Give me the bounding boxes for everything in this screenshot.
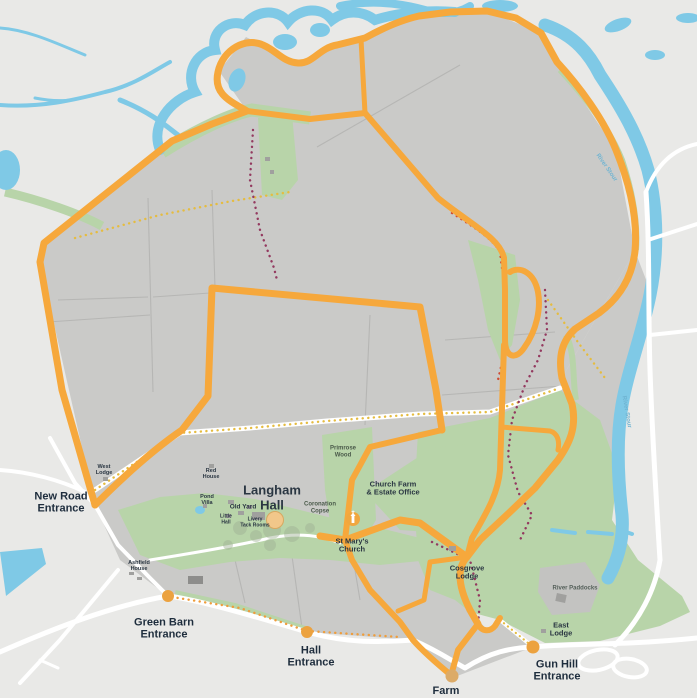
left-edge-water xyxy=(0,150,20,190)
ashfield-house-building-2 xyxy=(137,577,142,580)
east-lodge-building xyxy=(541,629,546,633)
water-pool-3 xyxy=(310,23,330,37)
cosgrove-lodge-building xyxy=(449,546,456,551)
water-pool-6 xyxy=(645,50,665,60)
north-green-patch xyxy=(258,114,298,200)
green-barn-entrance-marker xyxy=(162,590,174,602)
route-hook xyxy=(478,618,500,630)
ashfield-house-building-1 xyxy=(129,572,134,575)
old-yard-building-1 xyxy=(228,500,234,504)
tributary-2 xyxy=(0,62,170,106)
pond-villa-building xyxy=(203,504,207,508)
tributary-3 xyxy=(35,97,85,101)
west-lodge-building xyxy=(103,477,108,481)
estate-map: New RoadEntranceGreen BarnEntranceHallEn… xyxy=(0,0,697,698)
old-yard-building-3 xyxy=(226,514,231,518)
water-pool-2 xyxy=(273,34,297,50)
roundabout-2 xyxy=(612,656,649,680)
water-pool-5 xyxy=(603,15,633,36)
langham-hall-marker xyxy=(267,512,284,529)
east-road-branch-2 xyxy=(650,330,697,335)
hall-entrance-marker xyxy=(301,626,313,638)
water-pool-7 xyxy=(676,13,697,23)
bottom-left-water-strip xyxy=(0,548,46,596)
southwest-road-spur xyxy=(40,660,58,668)
southwest-road xyxy=(20,570,118,683)
north-patch-building-2 xyxy=(270,170,274,174)
langham-hall-building xyxy=(252,512,265,520)
old-yard-building-4 xyxy=(247,505,252,509)
north-patch-building-1 xyxy=(265,157,270,161)
estate-map-page: { "map": { "colors": { "background": "#e… xyxy=(0,0,697,698)
green-barn-building xyxy=(188,576,203,584)
farm-entrance-marker xyxy=(446,670,459,683)
river-broken-2 xyxy=(588,532,612,534)
gun-hill-entrance-marker xyxy=(527,641,540,654)
red-house-building xyxy=(209,464,214,468)
estate-map-canvas xyxy=(0,0,697,698)
old-yard-building-2 xyxy=(238,511,244,515)
tributary-1 xyxy=(0,28,85,55)
